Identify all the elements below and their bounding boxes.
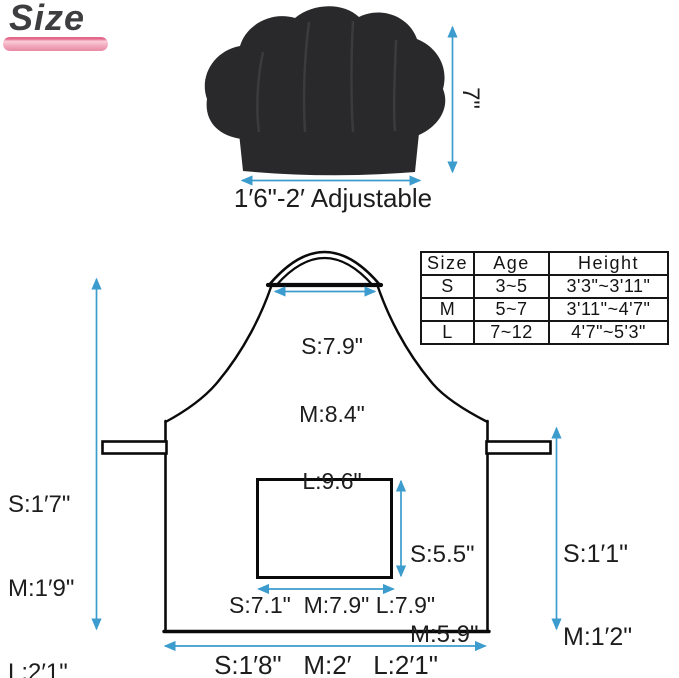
- table-row: M 5~7 3'11"~4'7": [421, 298, 668, 321]
- waist-tie-left: [103, 442, 167, 454]
- total-height-label: S:1′7" M:1′9" L:2′1": [8, 435, 74, 678]
- hat-height-label: 7": [456, 80, 484, 116]
- apron-size-chart: Size: [0, 0, 679, 678]
- size-table-header-height: Height: [549, 252, 668, 275]
- side-height-label: S:1′1" M:1′2" L:1′3": [563, 486, 632, 678]
- table-row: L 7~12 4'7"~5'3": [421, 321, 668, 344]
- pocket-width-label: S:7.1" M:7.9" L:7.9": [229, 592, 435, 619]
- neck-strap-inner-arc: [277, 258, 373, 285]
- size-table: Size Age Height S 3~5 3'3"~3'11" M 5~7 3…: [420, 251, 669, 345]
- neck-width-label: S:7.9" M:8.4" L:9.6": [299, 290, 365, 538]
- size-table-header-age: Age: [474, 252, 549, 275]
- size-table-header-row: Size Age Height: [421, 252, 668, 275]
- waist-tie-right: [487, 442, 551, 454]
- chef-hat-illustration: [205, 6, 446, 175]
- chef-hat-band: [239, 133, 419, 175]
- bottom-width-label: S:1′8" M:2′ L:2′1": [214, 650, 438, 678]
- table-row: S 3~5 3'3"~3'11": [421, 275, 668, 298]
- size-table-header-size: Size: [421, 252, 474, 275]
- chef-hat-puff: [205, 6, 446, 141]
- left-shoulder-curve: [166, 287, 272, 422]
- hat-width-label: 1′6"-2′ Adjustable: [234, 183, 432, 214]
